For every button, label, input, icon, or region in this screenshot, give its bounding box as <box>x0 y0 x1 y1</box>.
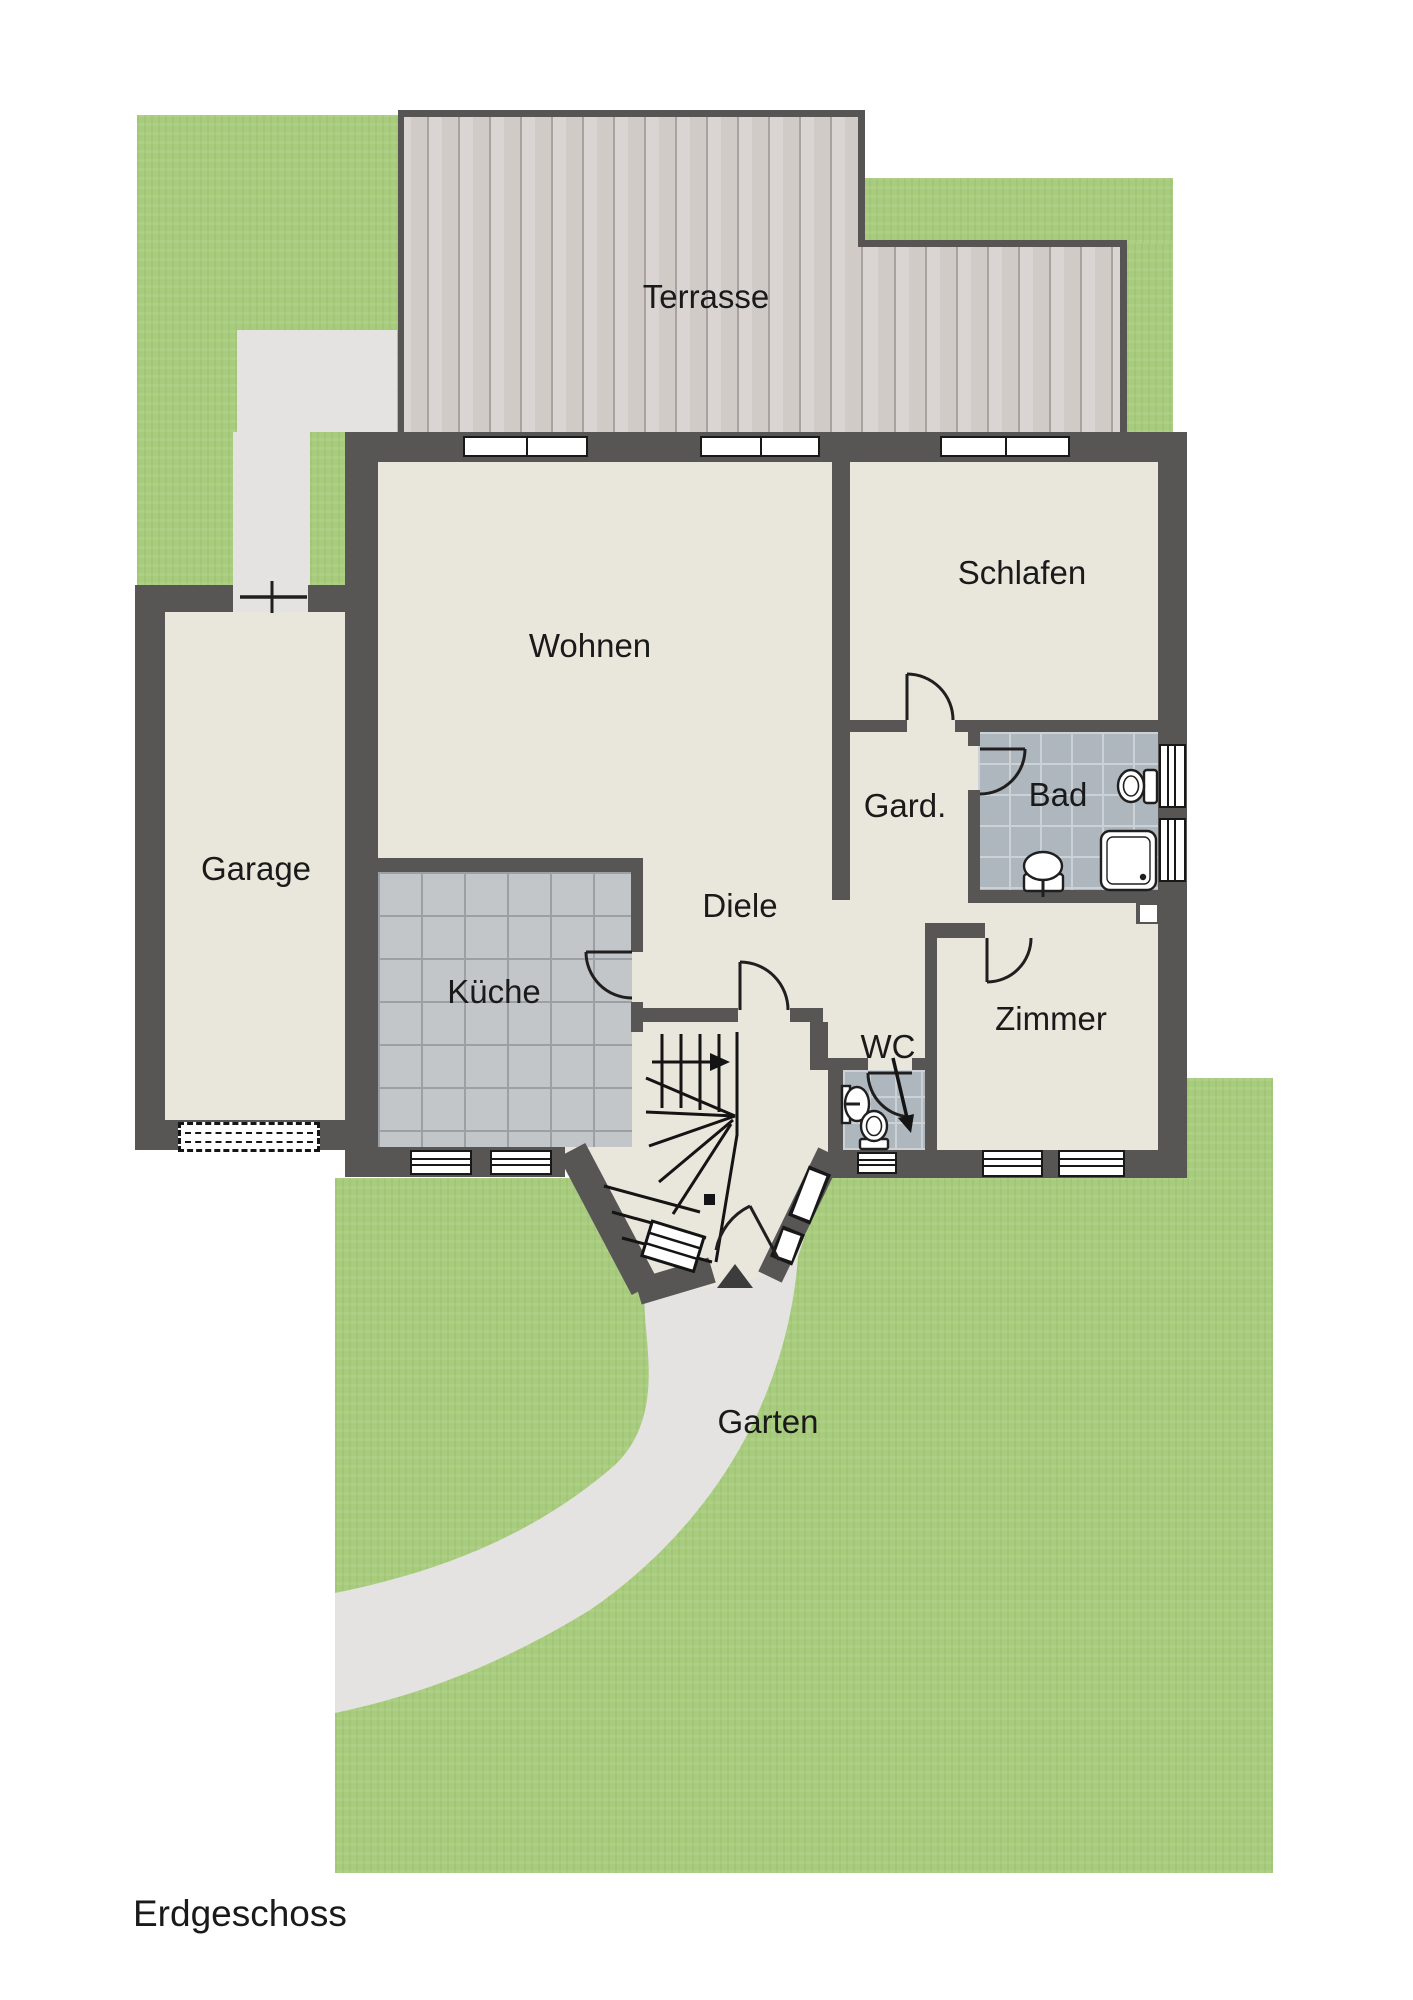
room-label-garage: Garage <box>201 850 311 888</box>
stair-winder <box>646 1112 735 1116</box>
entrance-arrow-icon <box>717 1264 753 1288</box>
room-label-wohnen: Wohnen <box>529 627 651 665</box>
room-label-garderobe: Gard. <box>864 787 947 825</box>
window-entrance-sidelight-2 <box>783 1233 792 1258</box>
door-schlafen <box>907 674 953 720</box>
room-label-bad: Bad <box>1029 776 1088 814</box>
entry-steps <box>642 1221 704 1271</box>
room-label-garten: Garten <box>718 1403 819 1441</box>
stair-winder <box>673 1124 731 1214</box>
door-kueche <box>586 952 632 998</box>
floor-title: Erdgeschoss <box>133 1893 347 1935</box>
toilet-wc-icon <box>860 1111 888 1149</box>
room-label-kueche: Küche <box>447 973 541 1011</box>
door-zimmer <box>987 938 1031 982</box>
room-label-diele: Diele <box>702 887 777 925</box>
room-label-zimmer: Zimmer <box>995 1000 1107 1038</box>
shower-icon <box>1101 831 1156 890</box>
room-label-wc: WC <box>861 1028 916 1066</box>
toilet-bad-icon <box>1118 770 1157 803</box>
door-bad <box>980 749 1025 794</box>
room-label-schlafen: Schlafen <box>958 554 1086 592</box>
door-diele-corridor <box>740 962 788 1010</box>
stair-newel-post <box>704 1194 715 1205</box>
stair-winder <box>646 1078 735 1116</box>
wc-leader-arrow <box>893 1058 914 1133</box>
door-garden-gate <box>240 581 307 613</box>
floor-plan-erdgeschoss: Terrasse Wohnen Schlafen Garage Küche Di… <box>0 0 1413 2000</box>
room-label-terrasse: Terrasse <box>643 278 770 316</box>
sink-bad-icon <box>1024 852 1063 897</box>
